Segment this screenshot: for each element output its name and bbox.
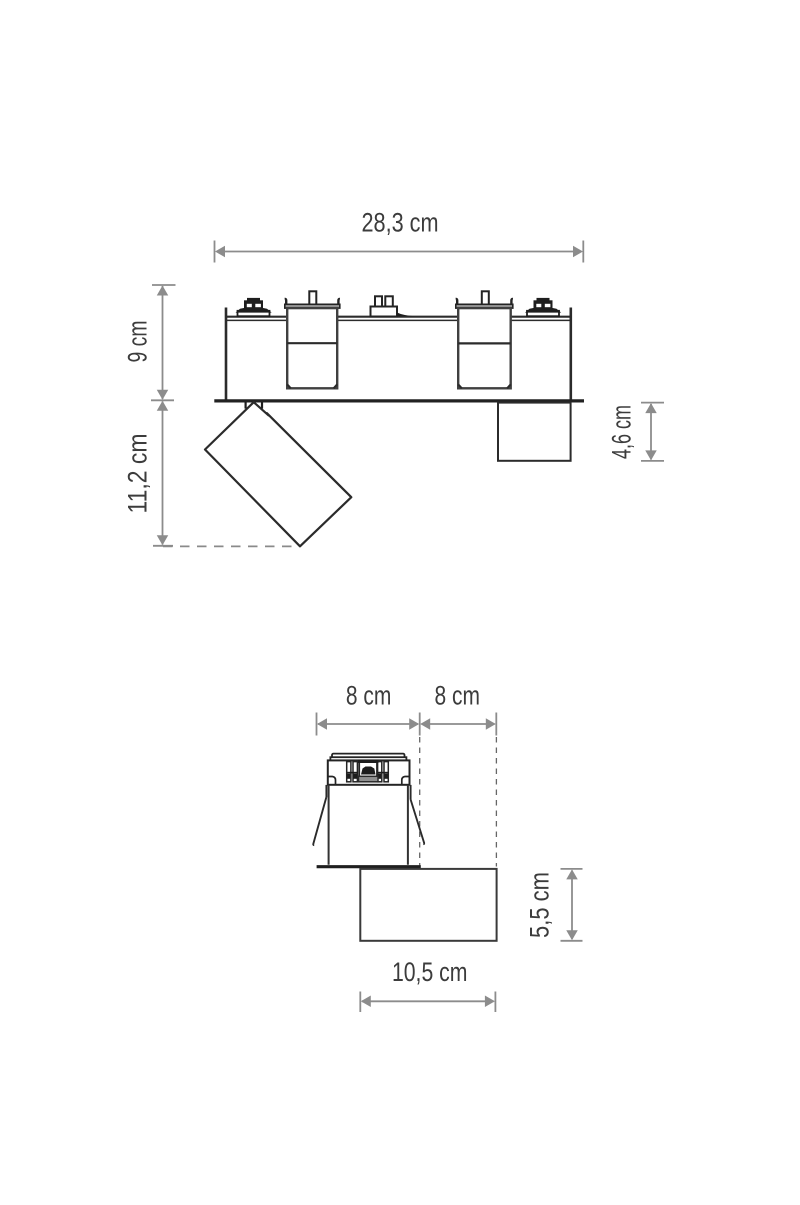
svg-text:8 cm: 8 cm — [346, 681, 392, 711]
svg-text:28,3 cm: 28,3 cm — [362, 208, 439, 238]
svg-text:8 cm: 8 cm — [434, 681, 480, 711]
svg-text:11,2 cm: 11,2 cm — [123, 434, 153, 514]
svg-text:10,5 cm: 10,5 cm — [392, 957, 468, 987]
svg-text:9 cm: 9 cm — [123, 321, 153, 363]
svg-text:5,5 cm: 5,5 cm — [525, 872, 555, 938]
svg-text:4,6 cm: 4,6 cm — [607, 405, 637, 459]
